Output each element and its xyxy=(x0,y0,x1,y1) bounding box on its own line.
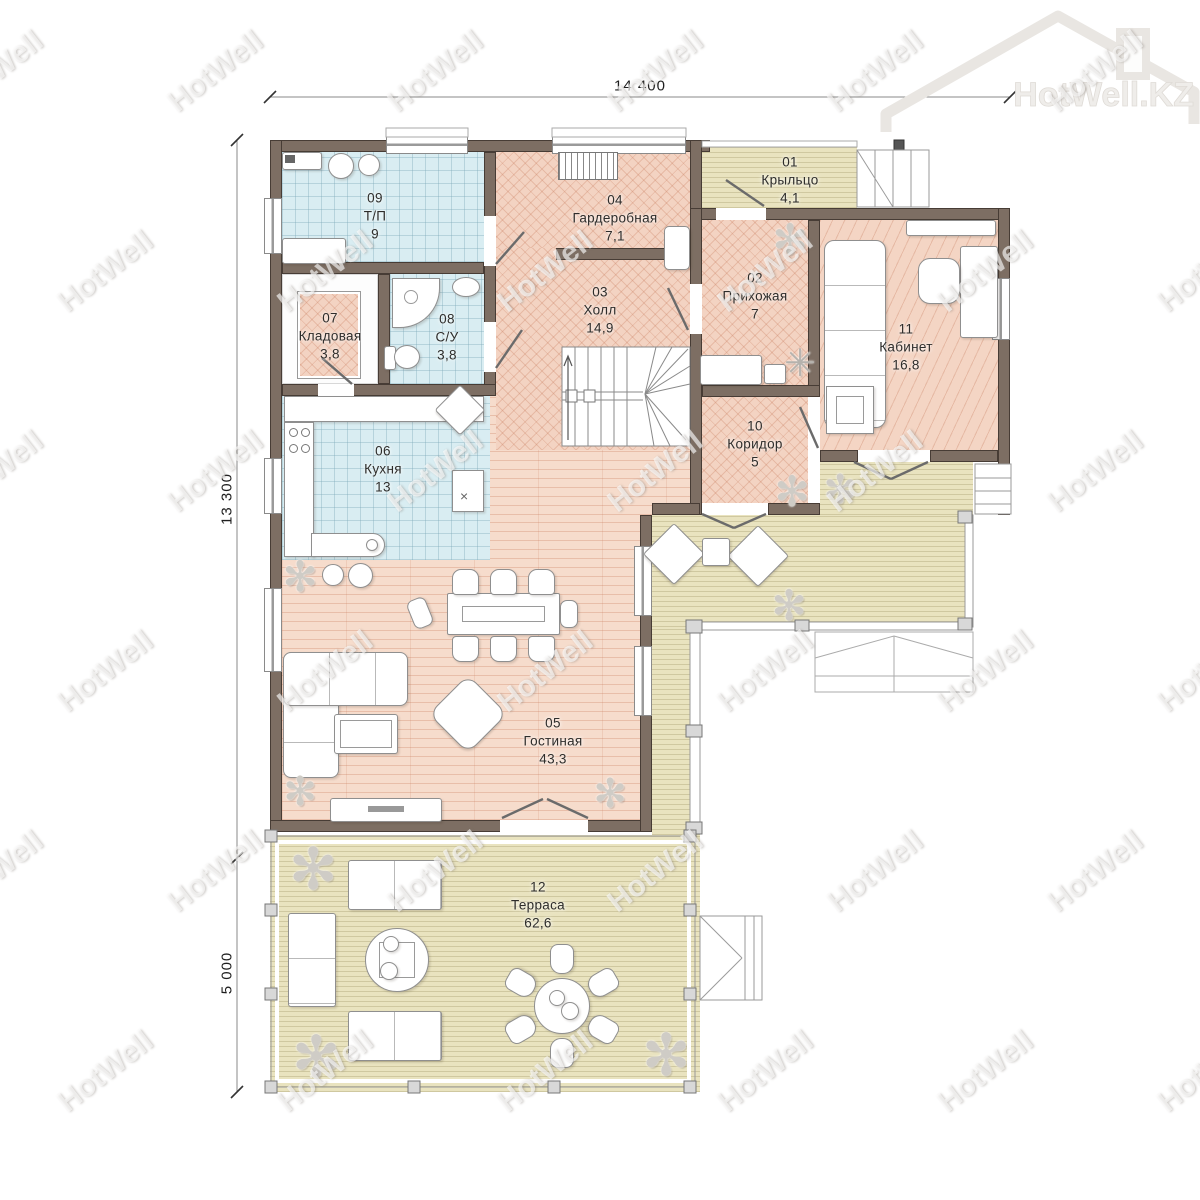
dimension-width: 14 400 xyxy=(614,78,666,95)
porch-stairs xyxy=(857,150,929,207)
room-label-05: 05Гостиная43,3 xyxy=(523,714,582,767)
floor-plan-canvas: × ✻ ✻ ✻ ✻ ✻ ✻ ✻ ✻ ✻ ✻ ✳ xyxy=(0,0,1200,1200)
room-label-02: 02Прихожая7 xyxy=(723,269,788,322)
logo-text: HotWell.KZ xyxy=(1013,76,1194,114)
side-deck-stairs xyxy=(975,464,1011,514)
room-label-04: 04Гардеробная7,1 xyxy=(573,191,658,244)
room-label-12: 12Терраса62,6 xyxy=(511,878,565,931)
roof-outline xyxy=(815,632,973,692)
room-label-07: 07Кладовая3,8 xyxy=(299,309,362,362)
room-label-09: 09Т/П9 xyxy=(364,189,387,242)
deck-railing xyxy=(686,511,973,834)
dimension-height-upper: 13 300 xyxy=(219,473,236,525)
room-label-08: 08С/У3,8 xyxy=(436,310,459,363)
door-leaves xyxy=(322,180,928,818)
linework-overlay xyxy=(0,0,1200,1200)
room-label-03: 03Холл14,9 xyxy=(583,283,616,336)
dimension-height-lower: 5 000 xyxy=(219,952,236,995)
hotwell-logo: HotWell.KZ xyxy=(872,0,1200,140)
staircase xyxy=(562,347,690,446)
terrace-railing xyxy=(265,830,696,1093)
terrace-stairs xyxy=(700,916,762,1000)
room-label-10: 10Коридор5 xyxy=(727,417,782,470)
window-sills xyxy=(386,128,904,150)
room-label-06: 06Кухня13 xyxy=(364,442,402,495)
room-label-01: 01Крыльцо4,1 xyxy=(761,153,818,206)
room-label-11: 11Кабинет16,8 xyxy=(879,320,932,373)
